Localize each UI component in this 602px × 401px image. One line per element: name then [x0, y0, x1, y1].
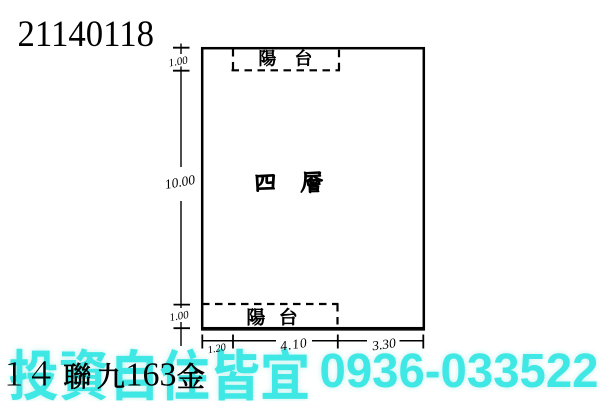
svg-text:163: 163: [126, 357, 177, 394]
svg-text:21140118: 21140118: [18, 13, 155, 54]
